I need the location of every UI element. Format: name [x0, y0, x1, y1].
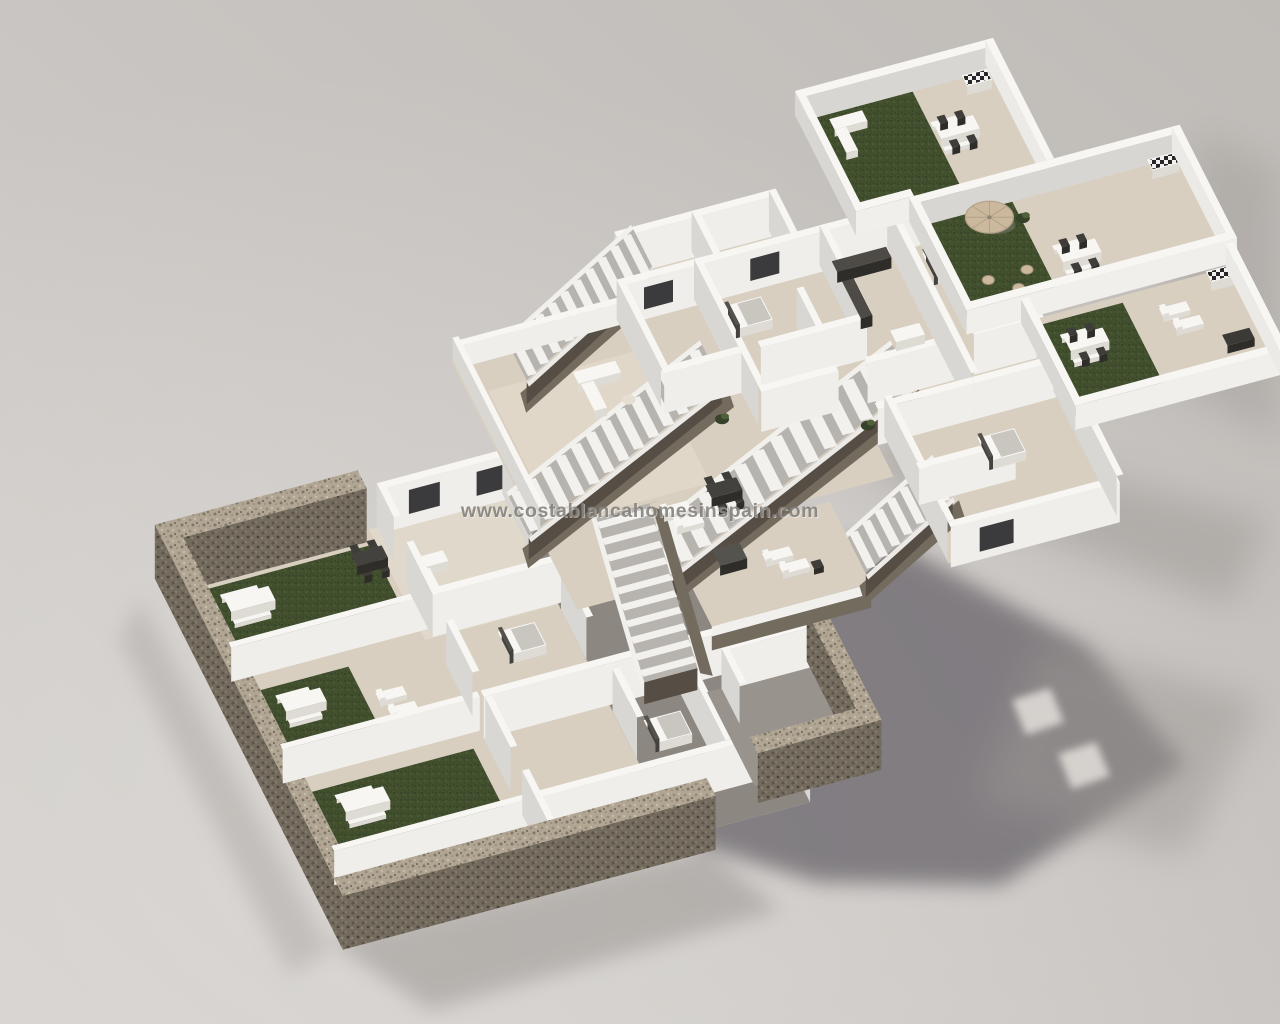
parasol-pole-top: [987, 215, 991, 219]
floorplan-render: www.costablancahomesinspain.com www.cost…: [0, 0, 1280, 1024]
plant-icon: [867, 420, 875, 426]
bed-headboard: [510, 650, 514, 664]
sun-lounger: [1163, 313, 1169, 323]
render-stage: www.costablancahomesinspain.com www.cost…: [0, 0, 1280, 1024]
bed-headboard: [655, 739, 659, 753]
sun-lounger: [766, 558, 772, 568]
bed-headboard: [989, 456, 993, 470]
sun-lounger: [380, 697, 386, 707]
sun-lounger: [677, 525, 683, 535]
watermark-text: www.costablancahomesinspain.com: [460, 500, 819, 522]
sun-lounger: [1177, 326, 1183, 336]
wicker-chair: [1021, 265, 1033, 274]
plant-icon: [1022, 212, 1030, 218]
wicker-chair: [982, 276, 994, 285]
side-table: [622, 395, 636, 405]
bed-headboard: [736, 324, 740, 338]
watermark: www.costablancahomesinspain.com www.cost…: [460, 500, 820, 523]
plant-icon: [721, 413, 729, 419]
sun-lounger: [783, 570, 789, 580]
